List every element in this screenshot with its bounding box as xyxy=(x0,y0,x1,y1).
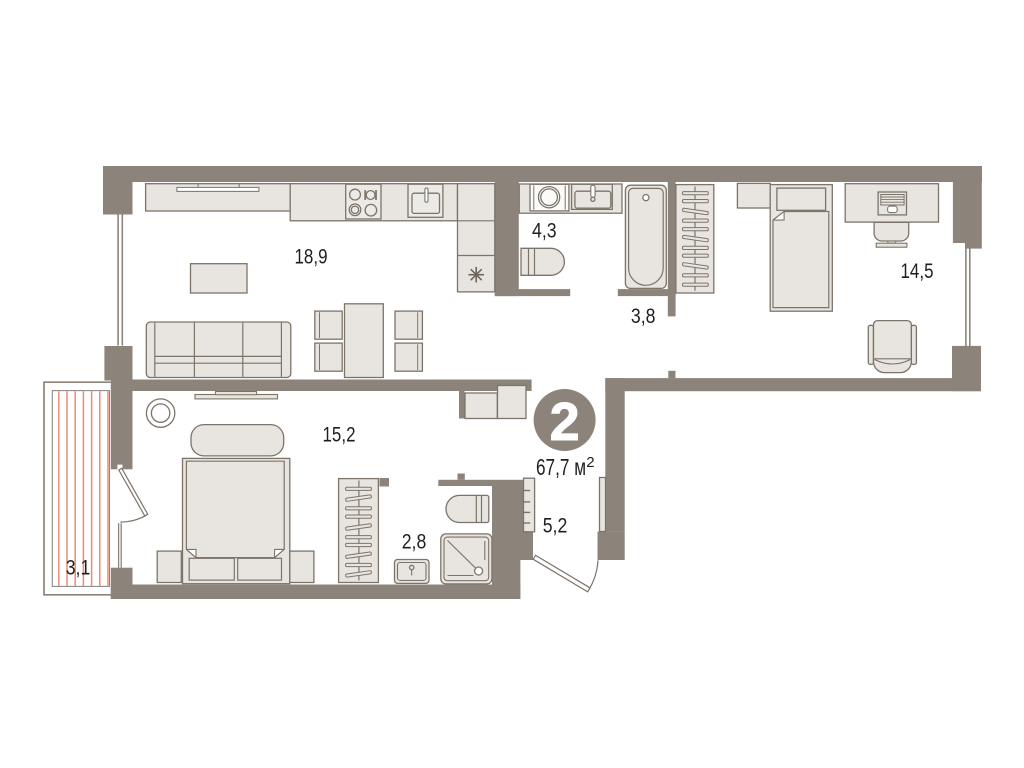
svg-text:4,3: 4,3 xyxy=(532,219,557,242)
svg-text:2: 2 xyxy=(550,392,580,452)
svg-text:14,5: 14,5 xyxy=(901,260,934,283)
svg-text:3,1: 3,1 xyxy=(66,556,91,579)
svg-text:2: 2 xyxy=(586,454,594,471)
svg-text:5,2: 5,2 xyxy=(543,514,568,537)
svg-text:2,8: 2,8 xyxy=(402,530,427,553)
svg-text:18,9: 18,9 xyxy=(295,245,328,268)
svg-text:67,7 м: 67,7 м xyxy=(536,454,586,480)
svg-text:3,8: 3,8 xyxy=(631,305,656,328)
svg-text:15,2: 15,2 xyxy=(323,423,356,446)
